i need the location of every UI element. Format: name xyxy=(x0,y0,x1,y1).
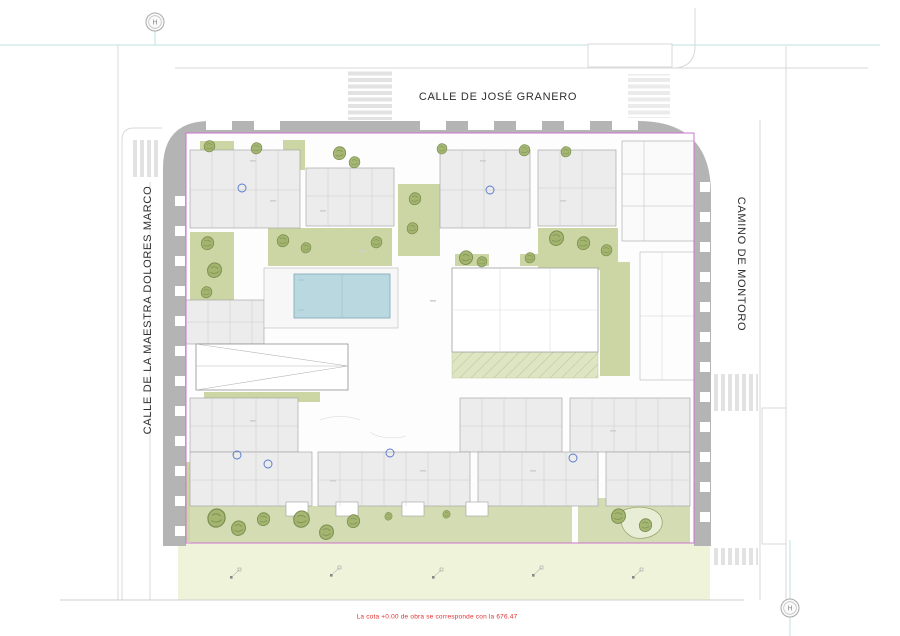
hydrant-marker-top: H xyxy=(146,13,164,31)
hydrant-marker-bottom: H xyxy=(781,599,799,617)
swimming-pool-terrace xyxy=(264,268,398,328)
hydrant-letter-top: H xyxy=(152,20,157,27)
south-lawn xyxy=(178,543,710,600)
crosswalk-left xyxy=(133,140,159,177)
street-label-top: CALLE DE JOSÉ GRANERO xyxy=(419,91,577,103)
street-label-left: CALLE DE LA MAESTRA DOLORES MARCO xyxy=(142,186,154,435)
sports-court xyxy=(452,268,598,352)
parking-ramp xyxy=(196,344,348,390)
site-plan-canvas: H H CALLE DE JOSÉ GRANERO CALLE DE LA MA… xyxy=(0,0,900,636)
crosswalk-right-upper xyxy=(713,374,758,411)
elevation-note: La cota +0.00 de obra se corresponde con… xyxy=(357,614,518,621)
crosswalk-right-lower xyxy=(713,548,758,565)
crosswalk-top-right xyxy=(628,74,670,118)
crosswalk-top-left xyxy=(348,70,392,120)
hydrant-letter-bottom: H xyxy=(787,606,792,613)
street-label-right: CAMINO DE MONTORO xyxy=(735,197,747,332)
hatched-garden xyxy=(452,352,598,378)
